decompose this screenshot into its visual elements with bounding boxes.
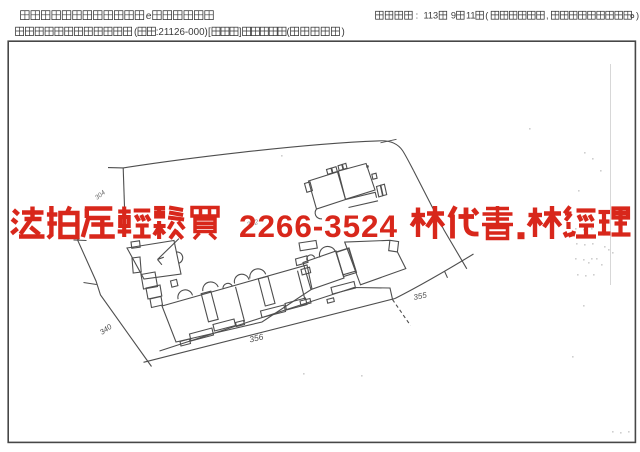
svg-text:): ) — [342, 27, 345, 38]
svg-text::: : — [416, 10, 419, 20]
svg-text:e: e — [146, 11, 152, 22]
svg-text:]: ] — [239, 27, 242, 38]
svg-text:113: 113 — [424, 10, 439, 20]
svg-text:2266-3524: 2266-3524 — [239, 208, 397, 244]
svg-text:9: 9 — [451, 10, 456, 20]
svg-text:,: , — [546, 10, 549, 20]
svg-text:[: [ — [208, 27, 211, 38]
svg-text:11: 11 — [466, 10, 476, 20]
svg-text:(: ( — [485, 10, 488, 20]
svg-text:21126-000): 21126-000) — [158, 27, 207, 38]
svg-text:): ) — [636, 10, 639, 20]
